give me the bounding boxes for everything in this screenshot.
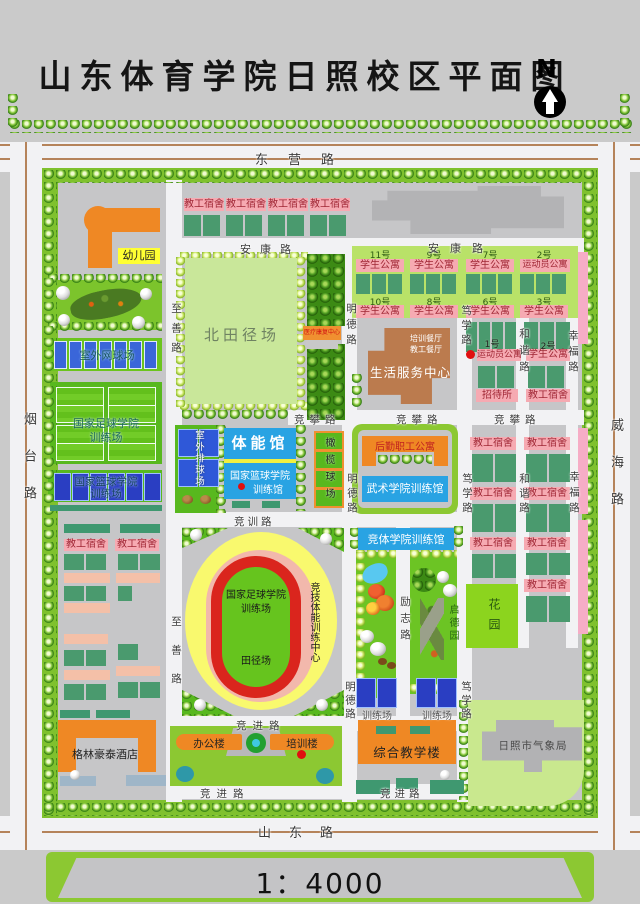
road-label-shandong: 山东路 xyxy=(258,822,351,841)
training-court xyxy=(437,678,457,708)
apartment-building xyxy=(426,274,440,294)
wushu-hall-label: 武术学院训练馆 xyxy=(367,482,444,495)
dorm-building xyxy=(118,586,132,601)
apartment-building xyxy=(388,274,402,294)
training-ground-label: 训练场 xyxy=(358,707,396,722)
tree-row xyxy=(378,455,432,466)
dorm-building xyxy=(140,554,160,570)
low-building xyxy=(430,780,464,794)
north-arrow-icon xyxy=(532,84,568,124)
pink-strip xyxy=(578,520,588,634)
medical-center-label: 医疗康复中心 xyxy=(303,326,341,340)
faculty-dorm-label: 教工宿舍 xyxy=(470,487,516,500)
apartment-building xyxy=(442,274,456,294)
low-building xyxy=(116,666,160,676)
rock xyxy=(132,316,145,329)
road-label-mingde: 明德路 xyxy=(344,303,359,350)
apartment-building xyxy=(552,274,566,294)
roof-strip xyxy=(262,501,280,508)
training-court xyxy=(356,678,376,708)
stadium-infield xyxy=(222,567,290,687)
dorm-building xyxy=(86,684,106,700)
road-label-zhishan: 至善路 xyxy=(169,616,184,702)
apartment-building xyxy=(498,274,512,294)
tree-row xyxy=(410,550,457,560)
student-apartment-label: 学生公寓 xyxy=(410,305,458,318)
dorm-building xyxy=(329,215,346,236)
hotel-building xyxy=(58,720,156,738)
road-label-xingfu: 幸福路 xyxy=(566,330,581,377)
rock xyxy=(182,495,193,504)
dorm-building xyxy=(310,215,327,236)
basketball-hall-label-1: 国家篮球学院 xyxy=(226,467,294,482)
scale-text: 1：4000 xyxy=(58,862,582,902)
training-canteen-label: 培训餐厅 xyxy=(406,333,446,344)
road-label-jingjin: 竞进路 xyxy=(200,786,250,801)
physical-hall-building: 体能馆 xyxy=(224,428,296,459)
dorm-building xyxy=(64,684,84,700)
tree-grove xyxy=(307,254,345,326)
road-label-lizhi: 励志路 xyxy=(398,596,413,646)
pitch-line xyxy=(57,405,103,406)
road-label-jingpan: 竞攀路 xyxy=(396,412,443,427)
apartment-building xyxy=(466,274,480,294)
stadium-label-1: 国家足球学院 xyxy=(222,586,290,601)
dorm-building xyxy=(140,682,160,698)
faculty-dorm-label: 教工宿舍 xyxy=(115,539,159,551)
location-dot xyxy=(238,483,245,490)
dorm-building xyxy=(118,644,138,660)
dorm-building xyxy=(526,553,547,575)
rock xyxy=(194,699,206,711)
rock xyxy=(140,288,152,300)
road-label-duxue: 笃学路 xyxy=(459,305,474,349)
dorm-building xyxy=(86,554,106,570)
rock xyxy=(320,533,332,545)
road-label-weihai: 威海路 xyxy=(606,418,625,529)
rock xyxy=(378,658,387,665)
tree-row xyxy=(44,170,596,183)
low-building xyxy=(116,573,160,583)
dorm-building xyxy=(495,504,516,532)
roof-strip xyxy=(120,524,160,533)
sculpture xyxy=(440,770,450,780)
guesthouse-label: 招待所 xyxy=(476,389,518,402)
road-label-hexie: 和谐路 xyxy=(517,328,532,378)
student-apartment-label: 学生公寓 xyxy=(356,259,404,272)
rock xyxy=(370,642,386,656)
basketball-hall-label-2: 训练馆 xyxy=(248,481,288,496)
faculty-dorm-label: 教工宿舍 xyxy=(184,198,224,211)
road-label-jingxun: 竞训路 xyxy=(234,514,275,529)
qide-garden-label: 启德园 xyxy=(445,604,460,643)
dorm-building xyxy=(226,215,243,236)
guesthouse-building xyxy=(478,366,495,388)
faculty-dorm-label: 教工宿舍 xyxy=(268,198,308,211)
kindergarten-building xyxy=(88,218,112,268)
dorm-building xyxy=(86,586,106,601)
tree-grove xyxy=(307,344,345,420)
compass-label: N xyxy=(536,54,557,83)
campus-map: 山东体育学院日照校区平面图 N 东营路 山东路 烟台路 威海路 安康路 安康路 xyxy=(0,0,640,904)
rock xyxy=(190,529,202,541)
dorm-building xyxy=(526,596,547,622)
stadium-label-2: 训练场 xyxy=(238,600,274,615)
faculty-dorm-label: 教工宿舍 xyxy=(524,437,570,450)
logistics-apartment-label: 后勤职工公寓 xyxy=(366,438,444,453)
rock xyxy=(200,495,211,504)
kindergarten-label: 幼儿园 xyxy=(118,248,160,264)
faculty-dorm-label: 教工宿舍 xyxy=(524,579,570,592)
low-building xyxy=(64,603,110,613)
road-label-yantai: 烟台路 xyxy=(19,412,38,523)
apartment-building xyxy=(536,274,550,294)
apartment-number: 2号 xyxy=(534,339,562,352)
road-label-duxue: 笃学路 xyxy=(460,473,475,517)
dorm-building xyxy=(118,682,138,698)
teaching-building-label: 综合教学楼 xyxy=(360,742,454,761)
rock xyxy=(387,662,396,669)
fountain-center xyxy=(252,739,260,747)
tree-row xyxy=(620,94,632,128)
dorm-building xyxy=(549,553,570,575)
tree-row xyxy=(182,410,290,422)
dorm-building xyxy=(184,215,201,236)
athlete-apartment-label: 运动员公寓 xyxy=(477,349,521,361)
rugby-label: 橄榄球场 xyxy=(321,437,336,505)
dorm-building xyxy=(472,504,493,532)
road-label-zhishan: 至善路 xyxy=(169,303,184,362)
low-building xyxy=(64,634,108,644)
logistics-apartment-building xyxy=(362,452,376,466)
road-label-jingjin: 竞进路 xyxy=(236,718,286,733)
training-court xyxy=(377,678,397,708)
road-label-jingpan: 竞攀路 xyxy=(494,412,541,427)
low-building xyxy=(64,670,110,680)
winding-path xyxy=(420,598,444,660)
jingti-hall-building: 竞体学院训练馆 xyxy=(358,528,454,550)
dorm-building xyxy=(64,554,84,570)
faculty-dorm-label: 教工宿舍 xyxy=(470,437,516,450)
tree-column xyxy=(296,425,306,511)
rock xyxy=(56,286,70,300)
basketball-area-label-2: 训练场 xyxy=(84,486,128,501)
logistics-apartment-building xyxy=(434,452,448,466)
faculty-dorm-label: 教工宿舍 xyxy=(64,539,108,551)
physical-hall-label: 体能馆 xyxy=(231,434,288,452)
location-dot xyxy=(466,350,475,359)
roof-strip xyxy=(64,524,110,533)
road-label-duxue: 笃学路 xyxy=(459,681,474,722)
faculty-dorm-label: 教工宿舍 xyxy=(526,389,570,402)
tennis-label: 室外网球场 xyxy=(58,347,156,363)
apartment-building xyxy=(482,274,496,294)
faculty-dorm-label: 教工宿舍 xyxy=(524,537,570,550)
sculpture xyxy=(70,770,80,780)
road-jingxun xyxy=(182,512,458,527)
rock xyxy=(58,314,70,326)
volleyball-label: 室外排球场 xyxy=(191,430,205,488)
dorm-building xyxy=(287,215,304,236)
roof-strip xyxy=(410,726,430,734)
tree-column xyxy=(352,374,362,408)
office-building-label: 办公楼 xyxy=(178,736,240,751)
life-service-label: 生活服务中心 xyxy=(370,362,450,381)
dorm-building xyxy=(472,454,493,482)
pond xyxy=(316,768,334,784)
road-label-ankang: 安康路 xyxy=(428,240,494,256)
dorm-building xyxy=(118,554,138,570)
competitive-center-label: 竞技体能训练中心 xyxy=(306,582,321,662)
road-line xyxy=(0,144,640,146)
apartment-building xyxy=(520,274,534,294)
wushu-hall-building: 武术学院训练馆 xyxy=(362,476,448,502)
road-label-mingde: 明德路 xyxy=(345,473,360,517)
student-apartment-label: 学生公寓 xyxy=(410,259,458,272)
apartment-building xyxy=(505,322,516,352)
tree-column xyxy=(454,526,463,550)
dorm-building xyxy=(549,596,570,622)
medical-center-base xyxy=(306,340,338,349)
road-label-jingjin: 竞进路 xyxy=(380,786,424,801)
north-track-label: 北田径场 xyxy=(197,324,287,345)
roof-strip xyxy=(376,726,396,734)
rock xyxy=(316,699,328,711)
dorm-building xyxy=(547,366,564,388)
staff-canteen-label: 教工餐厅 xyxy=(406,344,446,355)
roof-strip xyxy=(60,710,90,718)
pond xyxy=(176,766,194,782)
training-building-label: 培训楼 xyxy=(272,736,332,751)
dorm-building xyxy=(495,454,516,482)
apartment-number: 1号 xyxy=(478,337,506,350)
low-building xyxy=(126,775,166,786)
dorm-building xyxy=(268,215,285,236)
faculty-dorm-label: 教工宿舍 xyxy=(226,198,266,211)
page-title: 山东体育学院日照校区平面图 xyxy=(0,50,610,98)
dorm-building xyxy=(203,215,220,236)
student-apartment-label: 学生公寓 xyxy=(356,305,404,318)
big-tree xyxy=(412,568,436,592)
student-apartment-label: 学生公寓 xyxy=(520,305,568,318)
flower-garden-label: 花园 xyxy=(486,598,503,638)
flower-bed xyxy=(366,602,380,615)
road-label-jingpan: 竞攀路 xyxy=(294,412,341,427)
apartment-building xyxy=(356,274,370,294)
student-apartment-label: 学生公寓 xyxy=(466,259,514,272)
faculty-dorm-label: 教工宿舍 xyxy=(470,537,516,550)
faculty-dorm-label: 教工宿舍 xyxy=(310,198,350,211)
hotel-label: 格林豪泰酒店 xyxy=(62,746,148,762)
road-label-dongying: 东营路 xyxy=(255,149,354,168)
dorm-building xyxy=(64,650,84,666)
apartment-building xyxy=(372,274,386,294)
location-dot xyxy=(297,750,306,759)
rock xyxy=(443,584,457,597)
road-label-hexie: 和谐路 xyxy=(517,473,532,517)
meteorological-label: 日照市气象局 xyxy=(494,738,572,753)
dorm-building xyxy=(245,215,262,236)
jingti-hall-label: 竞体学院训练馆 xyxy=(368,533,445,546)
low-building xyxy=(64,573,110,583)
dorm-building xyxy=(472,554,493,578)
roof-strip xyxy=(50,505,162,511)
roof-strip xyxy=(96,710,130,718)
rock xyxy=(437,571,449,583)
apartment-building xyxy=(410,274,424,294)
training-ground-label: 训练场 xyxy=(418,707,456,722)
athlete-apartment-label: 运动员公寓 xyxy=(520,259,570,272)
dorm-building xyxy=(86,650,106,666)
stadium-label-3: 田径场 xyxy=(238,652,274,667)
rock xyxy=(360,630,374,643)
guesthouse-building xyxy=(497,366,514,388)
dorm-building xyxy=(495,554,516,578)
road-label-xingfu: 幸福路 xyxy=(567,471,582,518)
football-area-label-2: 训练场 xyxy=(82,429,130,445)
tree-row xyxy=(8,94,20,128)
dorm-building xyxy=(64,586,84,601)
road-label-ankang: 安康路 xyxy=(240,241,300,257)
tree-row xyxy=(48,274,162,285)
roof-strip xyxy=(232,501,250,508)
road-label-mingde: 明德路 xyxy=(343,681,358,722)
training-court xyxy=(416,678,436,708)
pitch-line xyxy=(109,405,155,406)
